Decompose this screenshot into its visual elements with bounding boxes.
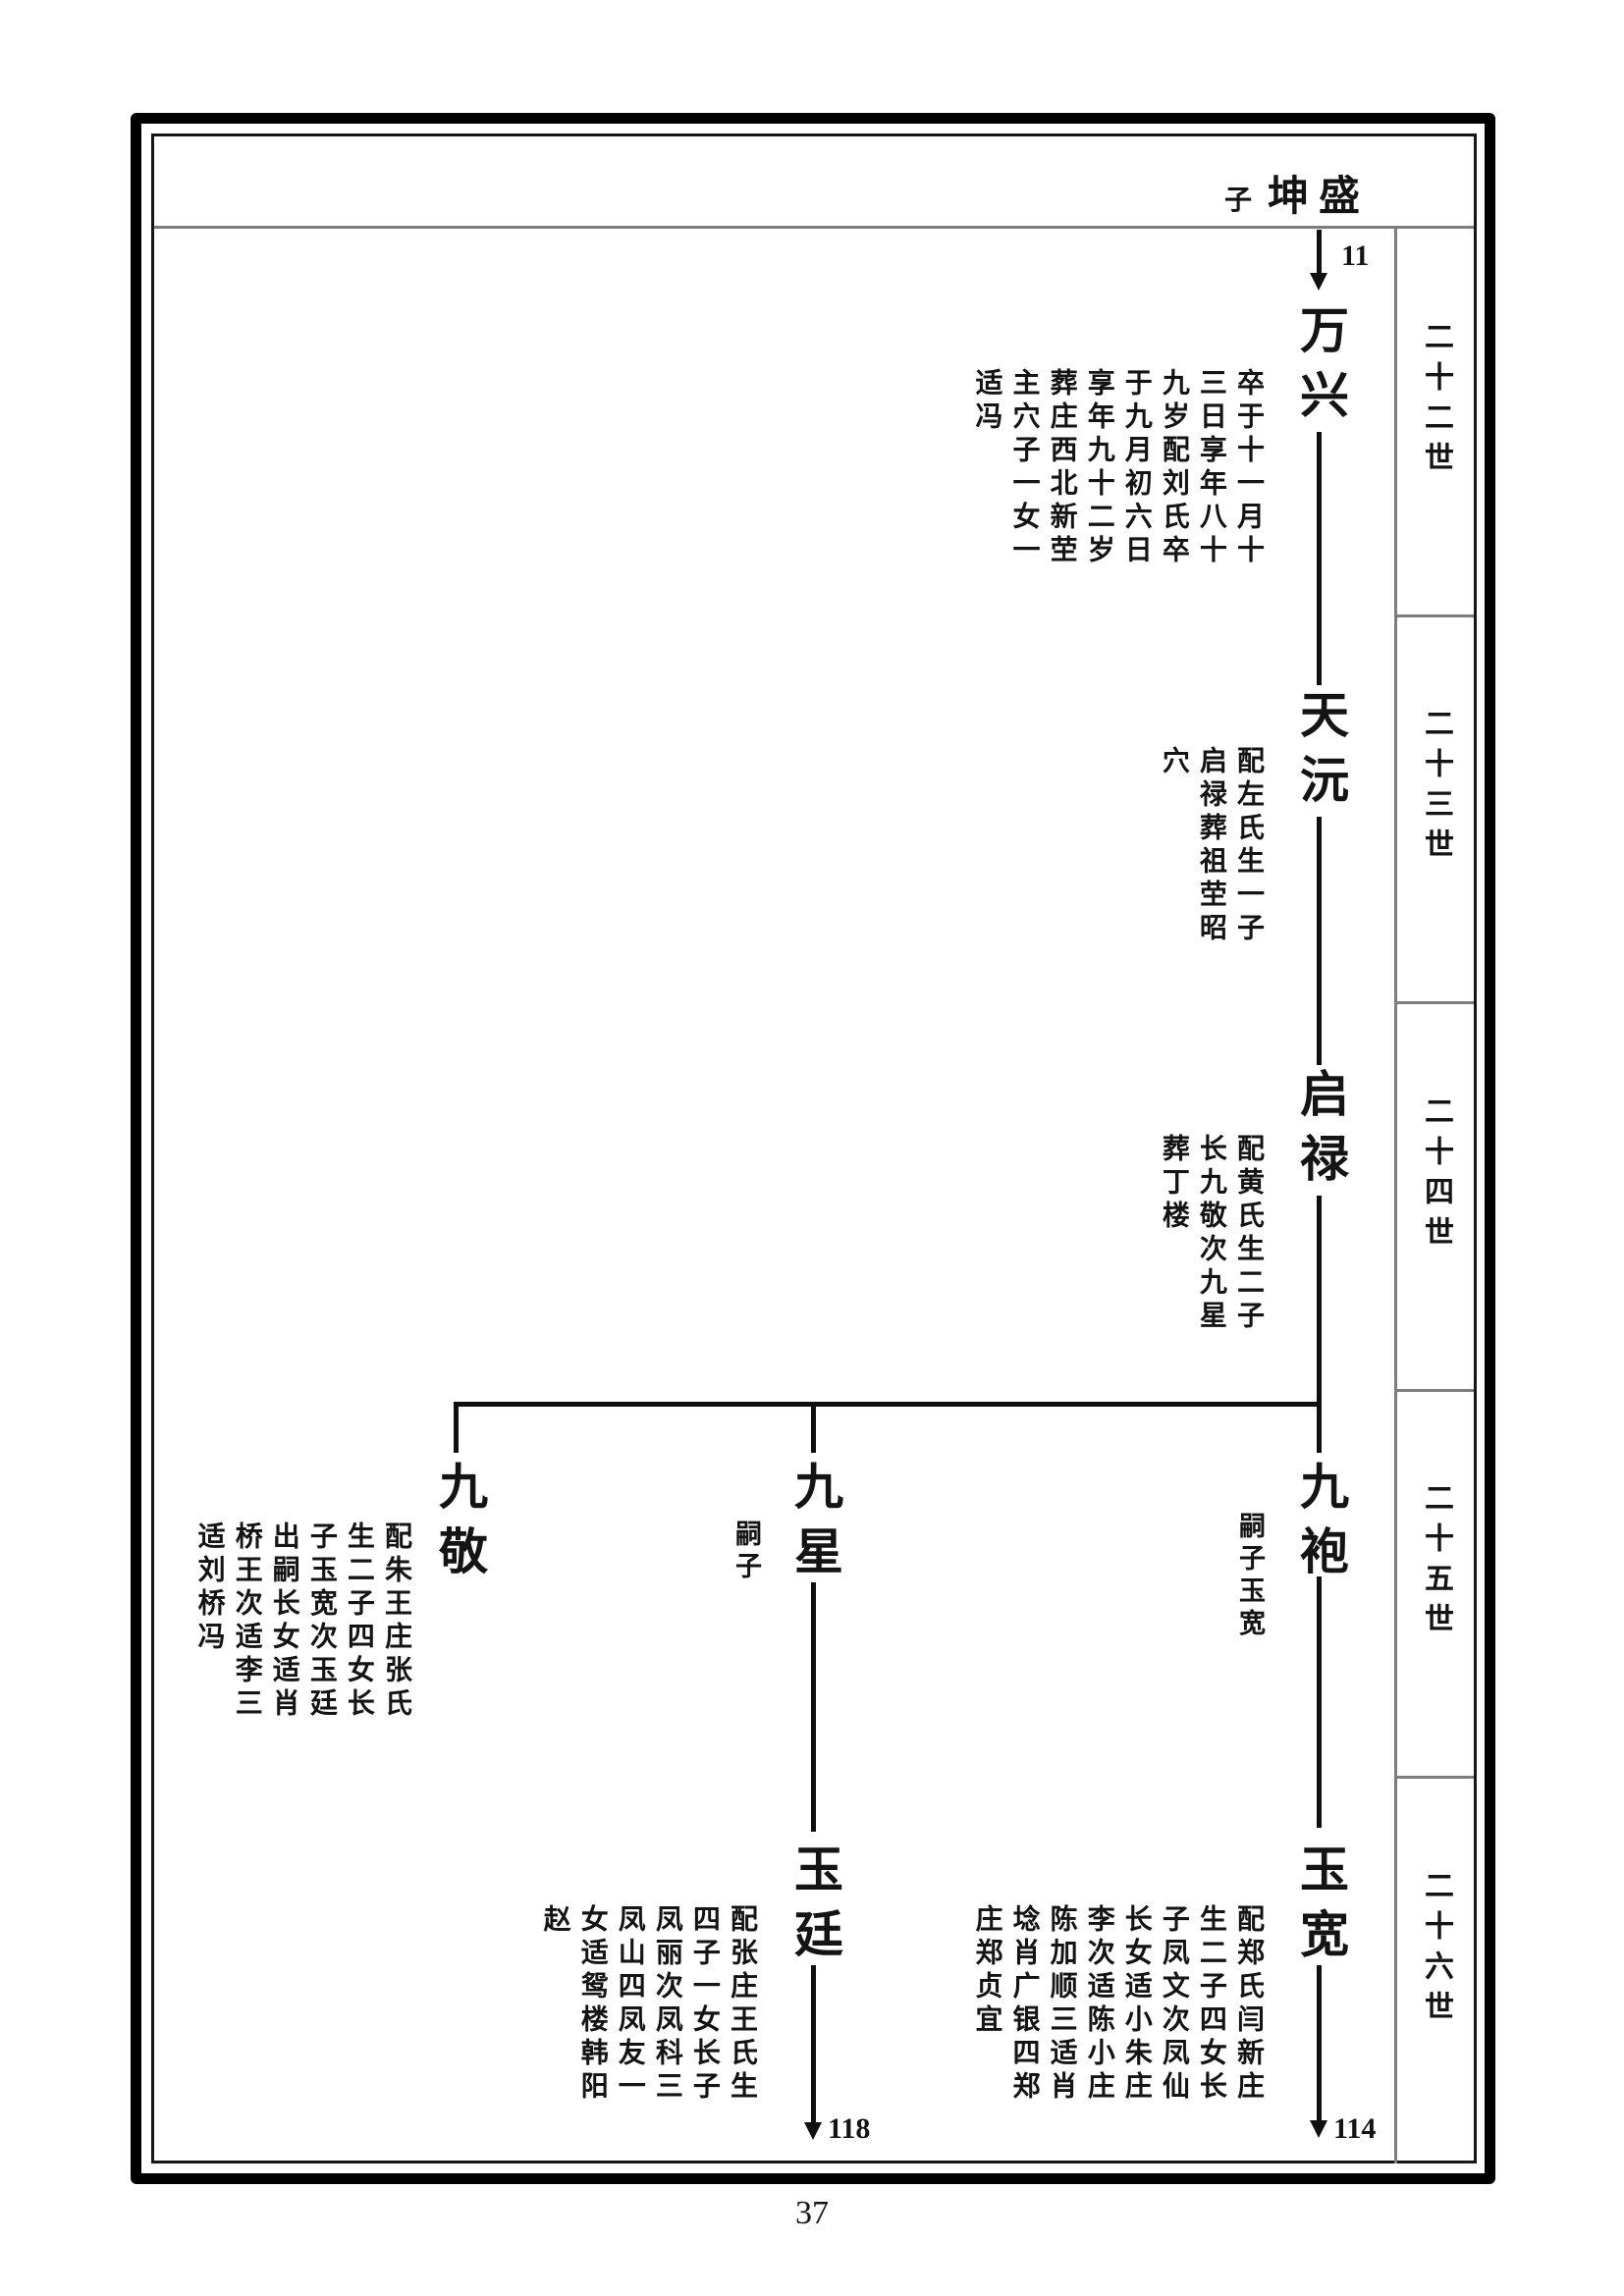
generation-cell-23: 二十三世 — [1398, 614, 1473, 1001]
descendant-arrow-number-yukuan: 114 — [1333, 2112, 1376, 2146]
person-detail-wanxing: 卒于十一月十三日享年八十九岁配刘氏卒于九月初六日享年九十二岁葬庄西北新茔主穴子一… — [967, 368, 1267, 576]
descendant-arrow-number-yuting: 118 — [828, 2112, 870, 2146]
generation-cell-25: 二十五世 — [1398, 1389, 1473, 1776]
branch-stub-middle — [811, 1402, 816, 1453]
branch-stub-left — [454, 1402, 459, 1453]
tree-line-segment — [1317, 817, 1322, 1065]
generation-cell-24: 二十四世 — [1398, 1001, 1473, 1389]
generation-label: 二十四世 — [1414, 1095, 1457, 1296]
generation-cell-22: 二十二世 — [1398, 228, 1473, 614]
generation-label: 二十六世 — [1414, 1870, 1457, 2070]
sidebar-vertical-line — [1394, 228, 1397, 2163]
arrow-down-icon — [1310, 2120, 1327, 2138]
generation-label: 二十三世 — [1414, 708, 1457, 908]
tree-line-segment — [1317, 1576, 1322, 1828]
person-name-jiuxing: 九星 — [786, 1461, 839, 1590]
branch-stub-right — [1317, 1402, 1322, 1453]
person-name-tianyuan: 天沅 — [1292, 689, 1345, 819]
person-detail-tianyuan: 配左氏生一子启禄葬祖茔昭穴 — [1155, 746, 1267, 954]
person-name-jiupao: 九袍 — [1292, 1461, 1345, 1590]
generation-label: 二十五世 — [1414, 1482, 1457, 1682]
page-number: 37 — [0, 2195, 1624, 2232]
tree-line-segment — [1317, 432, 1322, 685]
arrow-down-icon — [1310, 273, 1327, 291]
tree-line-segment — [1317, 1196, 1322, 1404]
person-name-yuting: 玉廷 — [786, 1843, 839, 1973]
generation-label: 二十二世 — [1414, 321, 1457, 521]
person-detail-yukuan: 配郑氏闫新庄生二子四女长子凤文次凤仙长女适小朱庄李次适陈小庄陈加顺三适肖埝肖广银… — [967, 1904, 1267, 2112]
descendant-arrow-stem — [811, 1965, 816, 2124]
branch-horizontal-line — [454, 1402, 1322, 1407]
header-ancestor-name: 坤盛 — [1268, 163, 1370, 223]
descendant-arrow-stem — [1317, 1965, 1322, 2122]
person-name-jiujing: 九敬 — [431, 1461, 484, 1590]
person-detail-jiujing: 配朱王庄张氏生二子四女长子玉宽次玉廷出嗣长女适肖桥王次适李三适刘桥冯 — [190, 1522, 414, 1730]
person-name-yukuan: 玉宽 — [1292, 1843, 1345, 1973]
person-name-qilu: 启禄 — [1292, 1068, 1345, 1198]
person-detail-yuting: 配张庄王氏生四子一女长子凤丽次凤科三凤山四凤友一女适鸳楼韩阳赵 — [536, 1904, 760, 2112]
arrow-down-icon — [804, 2122, 822, 2140]
person-name-wanxing: 万兴 — [1292, 304, 1345, 434]
person-detail-qilu: 配黄氏生二子长九敬次九星葬丁楼 — [1155, 1134, 1267, 1342]
generation-cell-26: 二十六世 — [1398, 1776, 1473, 2163]
tree-line-segment — [811, 1582, 816, 1832]
root-arrow-number: 11 — [1341, 240, 1369, 273]
person-side-label-jiupao: 嗣子玉宽 — [1232, 1512, 1267, 1688]
person-side-label-jiuxing: 嗣子 — [729, 1520, 763, 1696]
root-arrow-stem — [1317, 230, 1322, 275]
header-son-label: 子 — [1224, 179, 1252, 218]
header-separator-line — [154, 226, 1474, 229]
